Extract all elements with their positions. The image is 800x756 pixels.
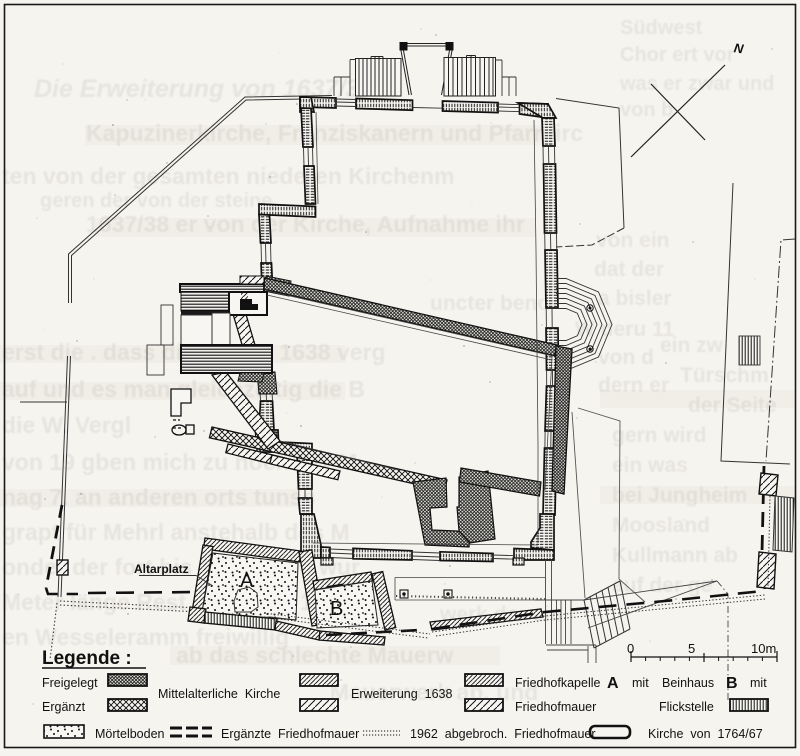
svg-text:Ergänzte Friedhofmauer: Ergänzte Friedhofmauer [221, 727, 359, 741]
svg-text:uncter bend: uncter bend [430, 292, 550, 315]
svg-text:geren der von der steine: geren der von der steine [40, 190, 272, 212]
svg-text:nag 7. an anderen orts tuns: nag 7. an anderen orts tunsc [2, 484, 315, 510]
svg-text:mit: mit [632, 676, 649, 690]
svg-text:5: 5 [688, 641, 695, 656]
svg-text:Friedhofmauer: Friedhofmauer [515, 700, 596, 714]
svg-text:dern er: dern er [598, 374, 669, 397]
svg-text:ein was: ein was [612, 454, 688, 477]
svg-text:von d: von d [598, 346, 654, 369]
svg-text:mit: mit [750, 676, 767, 690]
svg-text:dat der: dat der [594, 258, 664, 281]
svg-text:die W. Vergl: die W. Vergl [2, 412, 131, 438]
svg-text:a bisler: a bisler [598, 287, 672, 310]
svg-text:der Seite: der Seite [688, 394, 777, 417]
svg-text:B: B [330, 598, 343, 620]
svg-text:Kullmann ab: Kullmann ab [612, 544, 738, 567]
svg-text:gern wird: gern wird [612, 424, 707, 447]
svg-text:Altarplatz: Altarplatz [134, 562, 189, 576]
svg-text:B: B [726, 675, 738, 692]
svg-text:Kirche von 1764/67: Kirche von 1764/67 [648, 727, 763, 741]
svg-text:Kapuzinerkirche, Franziskanern: Kapuzinerkirche, Franziskanern und Pfarr… [86, 120, 583, 146]
svg-text:10m: 10m [751, 641, 776, 656]
svg-text:Erweiterung 1638: Erweiterung 1638 [351, 687, 453, 701]
svg-text:grapt für Mehrl anstehalb des: grapt für Mehrl anstehalb des M [2, 519, 350, 545]
svg-text:von b: von b [620, 99, 673, 121]
svg-text:von ein: von ein [596, 229, 670, 252]
svg-text:bei Jungheim: bei Jungheim [612, 484, 747, 507]
svg-text:Mörtelboden: Mörtelboden [95, 727, 165, 741]
svg-text:Mittelalterliche Kirche: Mittelalterliche Kirche [158, 687, 280, 701]
svg-text:ein zw: ein zw [660, 334, 724, 357]
svg-text:1962 abgebroch. Friedhofmaue: 1962 abgebroch. Friedhofmauer [410, 727, 596, 741]
svg-text:Freigelegt: Freigelegt [42, 676, 98, 690]
svg-text:ab das schlechte Mauerw: ab das schlechte Mauerw [176, 642, 453, 668]
svg-text:Legende :: Legende : [42, 648, 132, 669]
svg-text:ten von der gesamten niederen: ten von der gesamten niederen Kirchenm [2, 163, 454, 189]
svg-text:Flickstelle: Flickstelle [659, 700, 714, 714]
svg-text:Südwest: Südwest [620, 17, 703, 39]
svg-text:Ergänzt: Ergänzt [42, 700, 86, 714]
svg-text:Friedhofkapelle: Friedhofkapelle [515, 676, 601, 690]
svg-text:Moosland: Moosland [612, 514, 710, 537]
svg-text:Beinhaus: Beinhaus [662, 676, 714, 690]
svg-text:was er zwar und: was er zwar und [619, 73, 775, 95]
svg-text:Chor ert vor: Chor ert vor [620, 44, 735, 66]
svg-text:A: A [607, 675, 619, 692]
